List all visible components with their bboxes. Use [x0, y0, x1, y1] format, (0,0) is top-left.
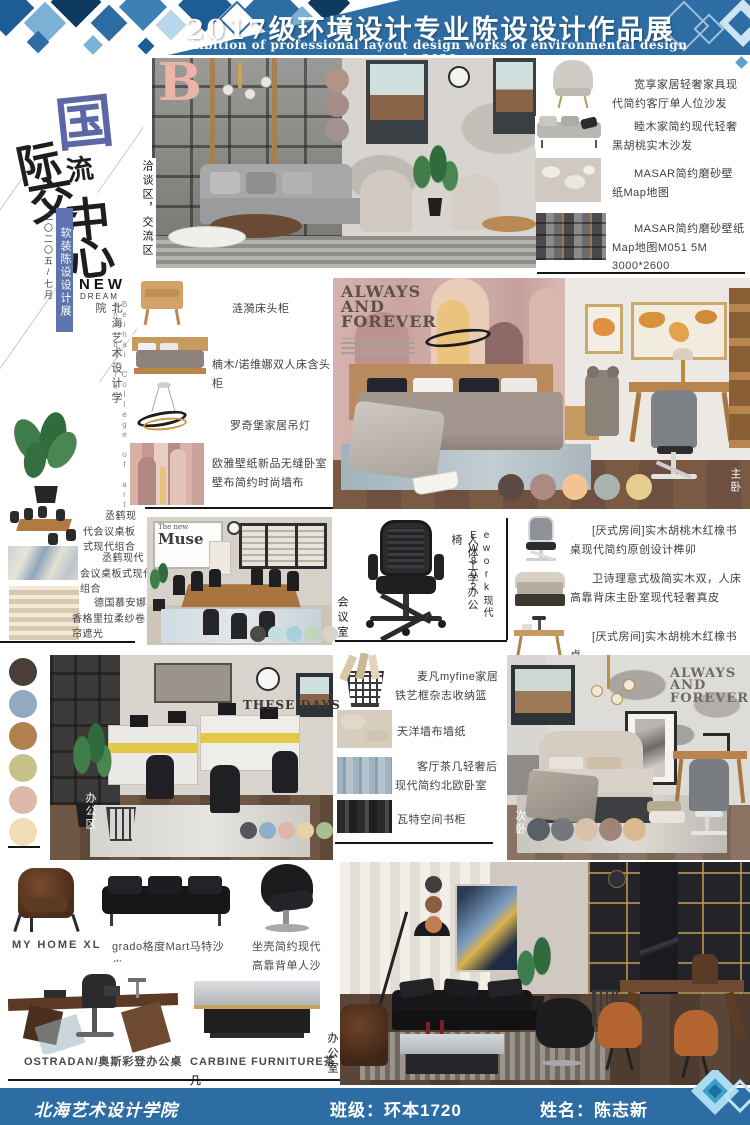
product-label: 睦木家简约现代轻奢黑胡桃实木沙发 [612, 118, 744, 155]
palette-dot [599, 818, 622, 841]
monitor [218, 703, 236, 715]
plant-photo [6, 412, 84, 512]
oak-desk-thumb [512, 614, 567, 660]
black-lounge-chair [536, 998, 594, 1048]
palette-dot [530, 474, 556, 500]
palette-dot [325, 118, 349, 142]
palette-dot [325, 68, 349, 92]
office-chair [689, 759, 729, 811]
palette-dot [562, 474, 588, 500]
poster-text-always-2: ALWAYS AND FOREVER [670, 668, 750, 705]
zone-label-second: 次卧 [512, 810, 528, 846]
nightstand-thumb [133, 277, 191, 329]
side-table [482, 216, 536, 232]
palette-dot [623, 818, 646, 841]
armchair-thumb [545, 58, 601, 108]
muse-board-text-big: Muse [158, 530, 204, 548]
product-label: [厌式房间]实木胡桃木红橡书桌现代简约原创设计榫卯 [570, 522, 746, 559]
product-label: 德国慕安娜香格里拉柔纱卷帘遮光 [72, 596, 152, 643]
desk [673, 751, 747, 759]
chair-armrest [434, 554, 444, 580]
brown-armchair [340, 1004, 388, 1066]
coffee-table-thumb [190, 975, 324, 1041]
bed-thumb [130, 335, 210, 379]
gold-chandelier [607, 655, 610, 689]
palette-dot [322, 626, 338, 642]
chair [209, 569, 221, 587]
palette-dot [594, 474, 620, 500]
chair-seat [376, 576, 436, 594]
office-chair [146, 755, 174, 799]
divider-line [8, 846, 40, 848]
product-label: 欧雅壁纸新品无缝卧室壁布简约时尚墙布 [212, 455, 332, 492]
palette-dot [527, 818, 550, 841]
palette-dot [297, 822, 314, 839]
waste-basket [106, 807, 136, 841]
product-label: CARBINE FURNITURE茶几 [190, 1053, 340, 1090]
chandelier [238, 62, 242, 88]
exec-desk-thumb [8, 962, 183, 1054]
product-label: 麦凡myfine家居铁艺框杂志收纳篮 [395, 668, 505, 705]
product-label: 卫诗理意式极简实木双，人床高靠背床主卧室现代轻奢真皮 [570, 570, 748, 607]
zone-label-office-zone: 办公区 [82, 792, 98, 844]
zone-label-office-room: 办公室 [324, 1032, 340, 1084]
poster-text-always: ALWAYS AND FOREVER [341, 284, 437, 330]
chair [191, 571, 203, 591]
marble-coffee-table [400, 1034, 504, 1054]
product-label: 涟漪床头柜 [232, 300, 328, 319]
palette-dot [9, 658, 37, 686]
product-label: 楠木/诺维娜双人床含头柜 [212, 356, 332, 393]
footer-name-field: 姓名：陈志新 [540, 1096, 648, 1121]
office-chair [651, 390, 697, 448]
palette-dot [278, 822, 295, 839]
poster-paragraph-decor [341, 338, 415, 354]
divider-line [145, 507, 333, 509]
exec-desk [620, 980, 744, 992]
palette-dot [304, 626, 320, 642]
poster-text-these-days: THESE DAYS [243, 700, 341, 711]
palette-dot [9, 818, 37, 846]
palette-dot [9, 786, 37, 814]
bookshelf [729, 288, 750, 448]
palette-dot [250, 626, 266, 642]
palette-dot [9, 754, 37, 782]
tan-chair [598, 1002, 642, 1048]
divider-line [537, 272, 745, 274]
abstract-rug-thumb [8, 546, 78, 580]
sofa-thumb [535, 116, 605, 150]
palette-dot [498, 474, 524, 500]
map-thumb [535, 158, 601, 202]
product-label: 罗奇堡家居吊灯 [230, 417, 330, 436]
wallpaper-pink-thumb [130, 443, 204, 505]
leather-bed-thumb [511, 570, 569, 612]
poster-page: 2017级环境设计专业陈设设计作品展 Exhibition of profess… [0, 0, 750, 1125]
zone-label-master: 主卧 [727, 468, 743, 504]
blue-texture-thumb [337, 757, 392, 794]
pendant-lamp-thumb [133, 382, 195, 436]
product-label: OSTRADAN/奥斯彩登办公桌 [24, 1053, 184, 1072]
desk-chair-back [692, 954, 718, 984]
zone-label-lounge: 洽谈区，交流区 [138, 158, 156, 270]
footer-class-field: 班级：环本1720 [330, 1096, 462, 1121]
armchair [360, 170, 412, 232]
product-label: 瓦特空间书柜 [397, 811, 497, 830]
divider-line [335, 842, 493, 844]
palette-dot [9, 722, 37, 750]
palette-dot [286, 626, 302, 642]
office-chair [210, 765, 240, 813]
black-sofa-thumb [98, 872, 234, 930]
coffee-table [168, 226, 246, 248]
palette-dot [268, 626, 284, 642]
divider-line [335, 640, 507, 642]
product-label: 客厅茶几轻奢后现代简约北欧卧室 [395, 758, 505, 795]
wine-glasses [426, 1022, 430, 1034]
footer-school-name: 北海艺术设计学院 [34, 1096, 178, 1121]
product-label: 丞鹤现代会议桌板式现代组合 [80, 551, 154, 598]
marble-panel [640, 862, 678, 994]
diamond-shape [138, 38, 155, 55]
palette-dot [259, 822, 276, 839]
brown-armchair-thumb [8, 864, 90, 934]
letter-b-decor: B [158, 52, 202, 113]
chair [231, 613, 247, 639]
wire-basket-thumb [340, 653, 390, 709]
window-blinds [239, 523, 327, 569]
mirror-tv [154, 663, 232, 703]
chair-armrest [368, 554, 378, 580]
palette-dot [425, 916, 442, 933]
white-office-chair-thumb [518, 514, 566, 566]
palette-dot [425, 876, 442, 893]
product-label: MY HOME XL [12, 936, 112, 955]
dark-bookcase-thumb [337, 800, 392, 833]
new-label: NEW [79, 276, 126, 293]
date-note: 二〇二〇五/七月 [42, 212, 55, 302]
palette-dot [551, 818, 574, 841]
office-chair [272, 751, 298, 793]
blinds-thumb [9, 586, 79, 640]
chair [203, 609, 219, 635]
conference-table-thumb [4, 503, 82, 545]
product-label: 天洋墙布墙纸 [397, 723, 497, 742]
school-name-en-vertical: Beihai College of art and design [111, 300, 129, 510]
blanket [347, 400, 446, 482]
chair [173, 575, 185, 595]
wall-clock [227, 521, 241, 535]
palette-dot [626, 474, 652, 500]
product-label: 丞鹤现代会议桌板式现代组合 [83, 509, 145, 556]
chair-type-label: 人体工学办公椅 [448, 534, 480, 624]
potted-plant [408, 142, 460, 204]
diamond-shape [83, 35, 103, 55]
footer-logo [690, 1070, 750, 1125]
desk-lamp [703, 733, 729, 736]
palette-dot [425, 896, 442, 913]
chair [251, 567, 263, 585]
wallpaper-thumb [536, 213, 606, 260]
blanket [525, 769, 600, 824]
palette-dot [9, 690, 37, 718]
table-lamp [681, 356, 685, 384]
product-label: MASAR简约磨砂壁纸Map地图M051 5M 3000*2600 [612, 220, 748, 276]
product-label: MASAR简约磨砂壁纸Map地图 [612, 165, 742, 202]
diamond-shape [735, 56, 748, 69]
wall-clock [256, 667, 280, 691]
monitor [130, 715, 148, 727]
product-label: 宽享家居轻奢家具现代简约客厅单人位沙发 [612, 76, 744, 113]
swivel-chair-thumb [243, 862, 331, 936]
wall-clock [448, 66, 470, 88]
palette-dot [575, 818, 598, 841]
kaws-figure [585, 370, 619, 436]
chair [287, 571, 299, 591]
executive-office-photo [340, 862, 750, 1085]
palette-dot [325, 93, 349, 117]
monitor [168, 711, 186, 723]
palette-dot [316, 822, 333, 839]
tan-chair [674, 1010, 718, 1056]
palette-dot [240, 822, 257, 839]
ribbon-soft-deco: 软装陈设设计展 [56, 208, 73, 332]
divider-line [0, 641, 135, 643]
divider-line [506, 518, 508, 640]
beige-texture-thumb [337, 710, 392, 748]
globe [608, 870, 626, 888]
chair [269, 569, 281, 587]
